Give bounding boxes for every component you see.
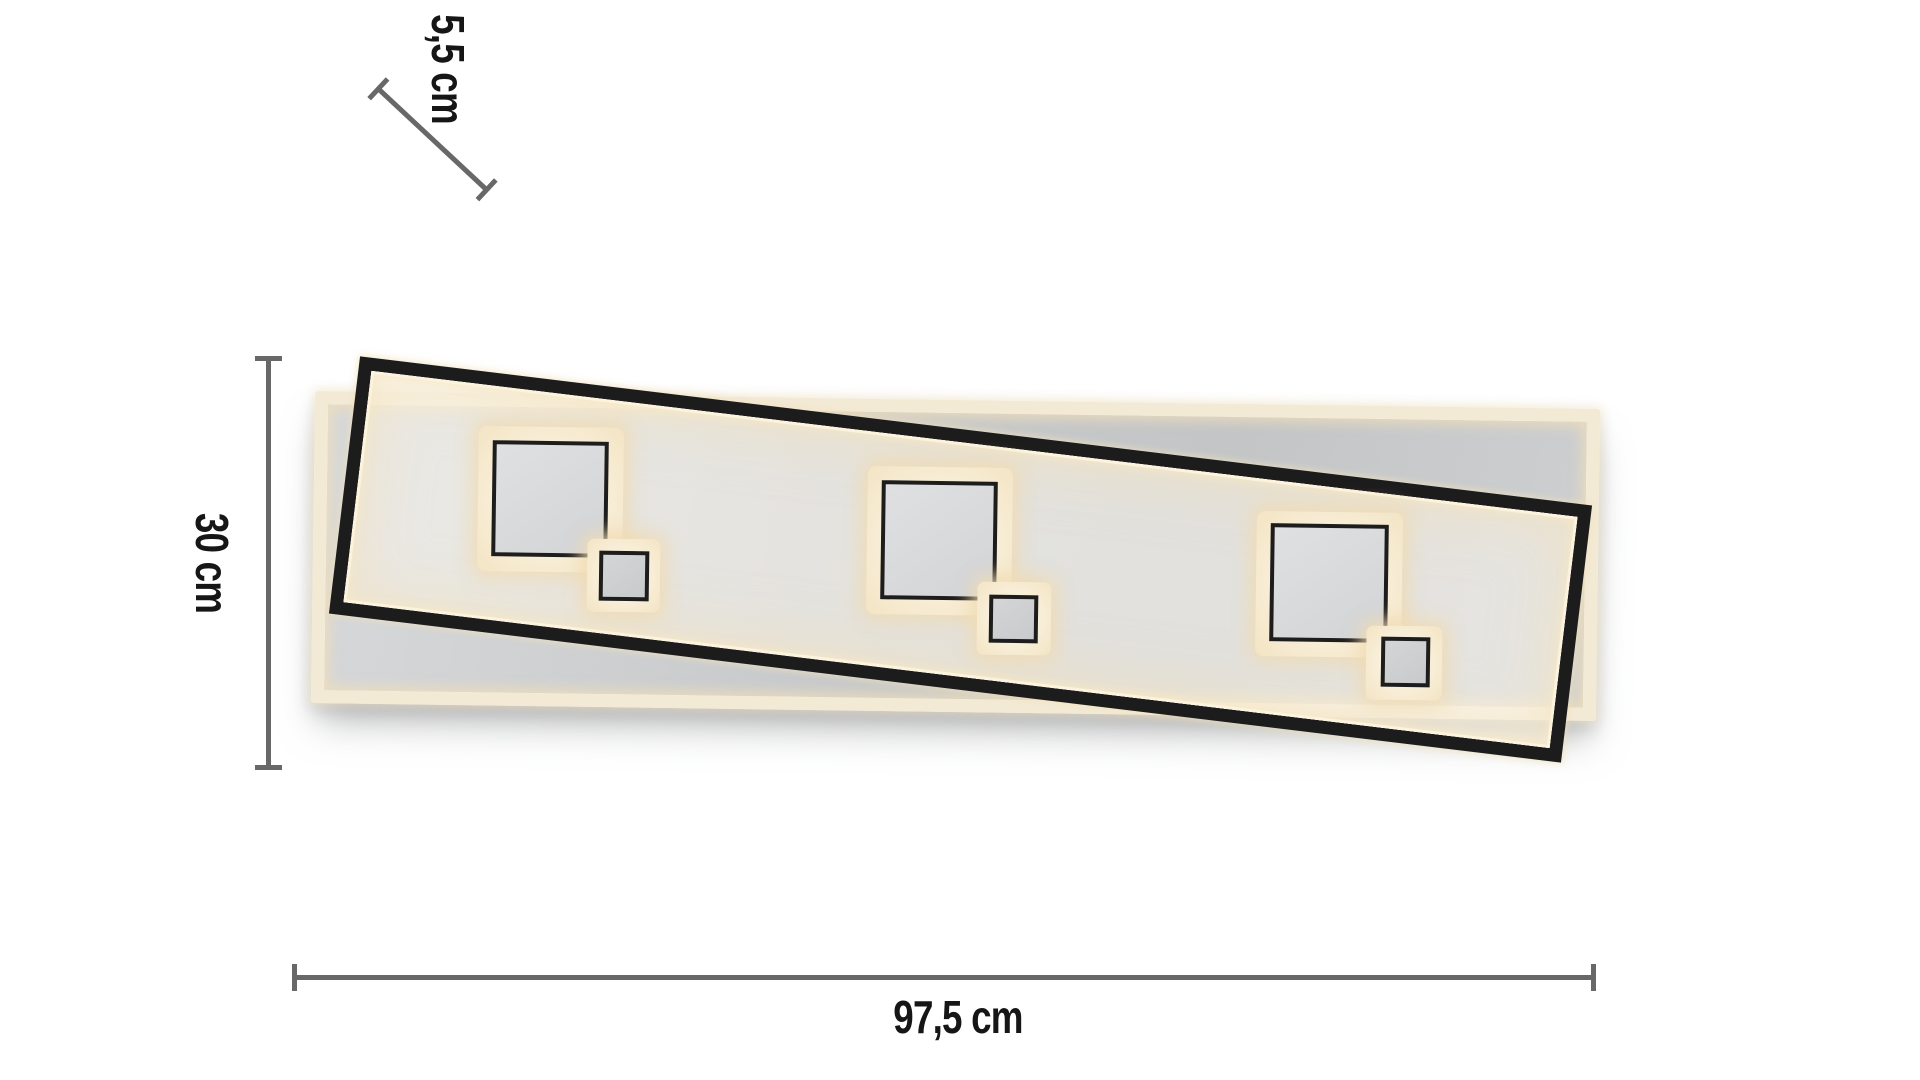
product-dimension-diagram: 5,5 cm 30 cm 97,5 cm — [0, 0, 1920, 1080]
dimension-height-value: 30 cm — [189, 513, 235, 613]
dimension-depth-label: 5,5 cm — [425, 0, 471, 137]
dimension-depth-value: 5,5 cm — [425, 14, 471, 124]
dimension-width-label: 97,5 cm — [877, 994, 1039, 1040]
dimension-width-line — [292, 975, 1596, 980]
square-small-1 — [599, 551, 650, 602]
square-small-2 — [989, 595, 1039, 644]
dimension-height-line — [266, 356, 271, 770]
dimension-width-value: 97,5 cm — [893, 994, 1022, 1040]
square-small-3 — [1381, 637, 1431, 688]
dimension-height-label: 30 cm — [189, 500, 235, 625]
